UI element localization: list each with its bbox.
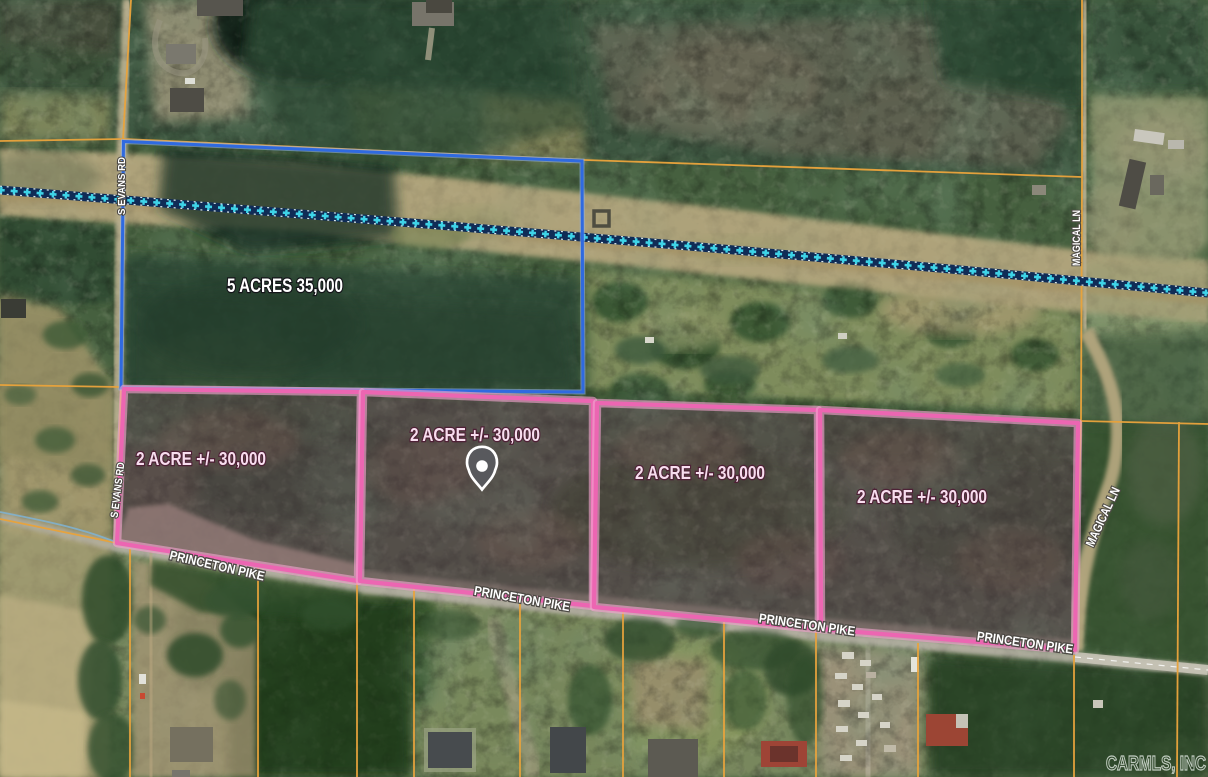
svg-text:2 ACRE +/- 30,000: 2 ACRE +/- 30,000 xyxy=(635,463,765,483)
svg-text:MAGICAL LN: MAGICAL LN xyxy=(1071,210,1083,266)
svg-text:2 ACRE +/- 30,000: 2 ACRE +/- 30,000 xyxy=(410,425,540,445)
svg-text:2 ACRE +/- 30,000: 2 ACRE +/- 30,000 xyxy=(136,449,266,469)
svg-text:5 ACRES 35,000: 5 ACRES 35,000 xyxy=(227,276,343,297)
svg-text:S EVANS RD: S EVANS RD xyxy=(116,157,128,215)
svg-text:2 ACRE +/- 30,000: 2 ACRE +/- 30,000 xyxy=(857,487,987,507)
svg-text:CARMLS, INC: CARMLS, INC xyxy=(1106,753,1206,775)
